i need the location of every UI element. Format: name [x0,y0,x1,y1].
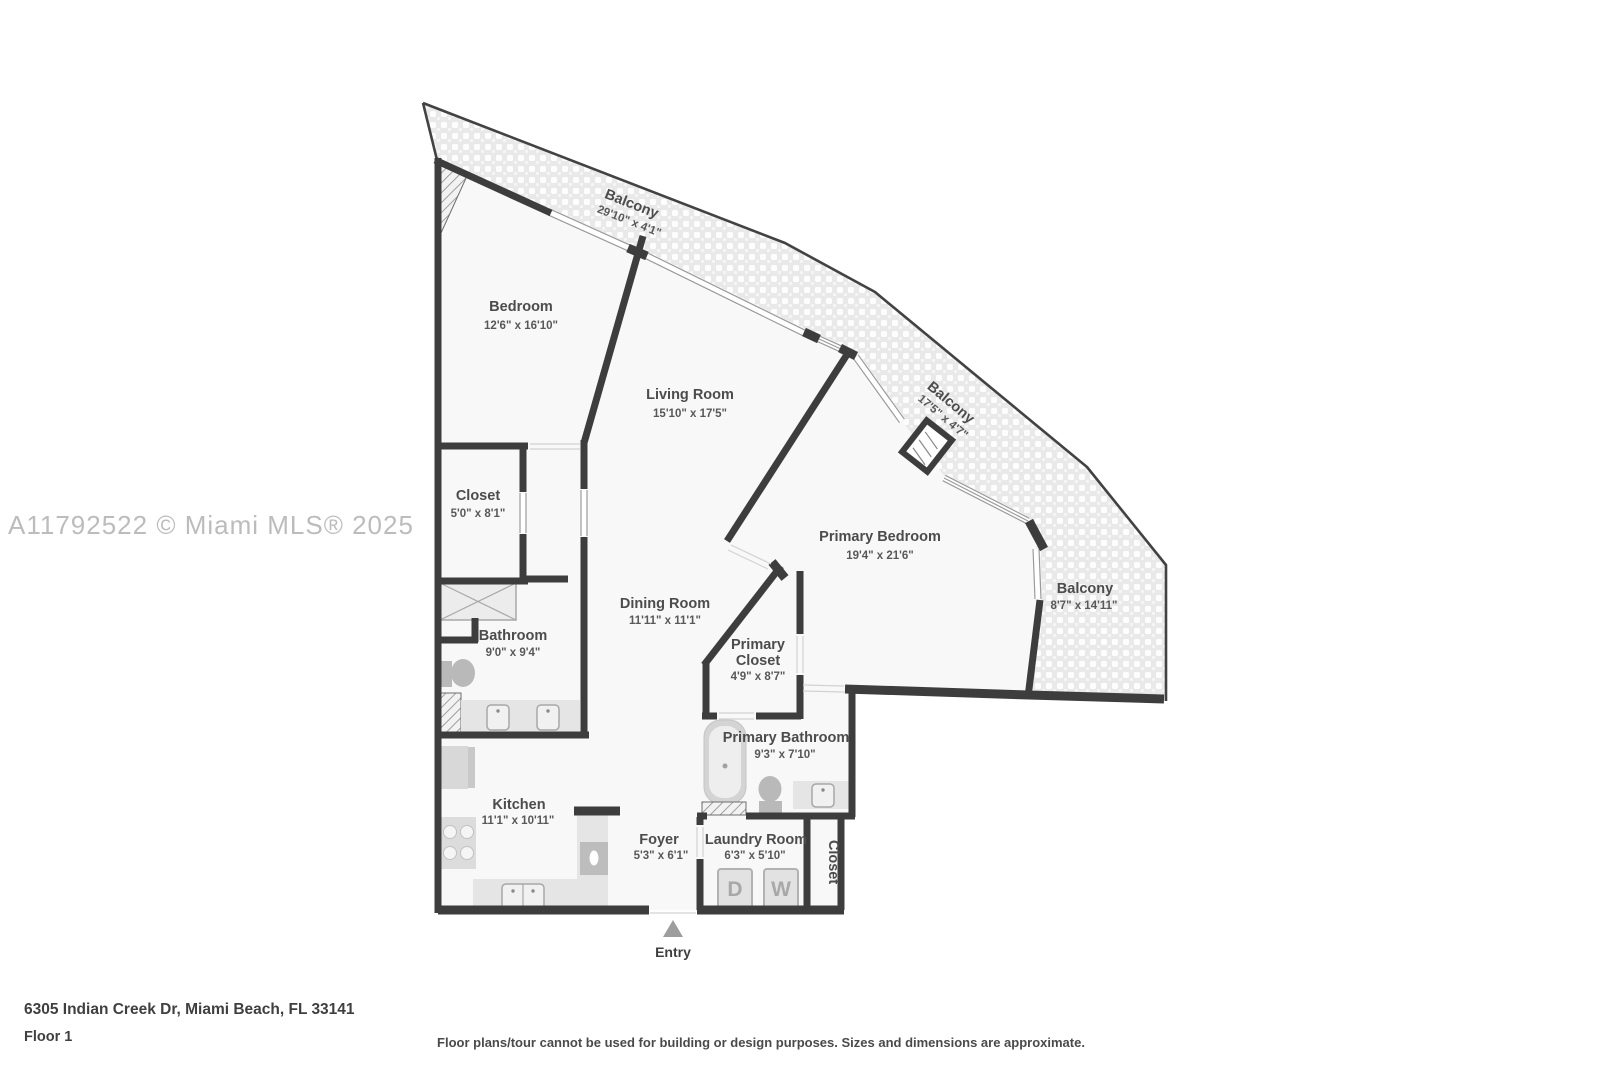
dryer-letter: D [727,878,742,901]
svg-text:8'7" x 14'11": 8'7" x 14'11" [1051,600,1118,612]
room-label-dining-room: Dining Room 11'11" x 11'1" [620,596,710,627]
svg-text:Closet: Closet [736,653,780,669]
svg-text:Dining Room: Dining Room [620,596,710,612]
wardrobe-icon [440,583,516,620]
svg-text:9'3" x 7'10": 9'3" x 7'10" [754,749,815,761]
svg-text:Primary: Primary [731,637,785,653]
svg-text:Closet: Closet [456,488,500,504]
svg-text:Living Room: Living Room [646,387,734,403]
svg-text:9'0" x 9'4": 9'0" x 9'4" [486,647,541,659]
svg-text:Laundry Room: Laundry Room [705,832,807,848]
toilet-icon [438,659,475,687]
footer-address: 6305 Indian Creek Dr, Miami Beach, FL 33… [24,1001,355,1019]
svg-text:11'11" x 11'1": 11'11" x 11'1" [629,615,701,627]
svg-text:Foyer: Foyer [639,832,679,848]
footer-disclaimer: Floor plans/tour cannot be used for buil… [437,1035,1085,1050]
room-label-primary-closet: Primary Closet 4'9" x 8'7" [731,637,786,683]
svg-text:15'10" x 17'5": 15'10" x 17'5" [653,408,727,420]
svg-text:Primary Bedroom: Primary Bedroom [819,529,941,545]
svg-text:Balcony: Balcony [1057,581,1113,597]
entry-label: Entry [655,944,691,960]
page: A11792522 © Miami MLS® 2025 [0,0,1600,1066]
svg-text:5'3" x 6'1": 5'3" x 6'1" [634,850,689,862]
floor-plan: D W [0,0,1600,1066]
primary-vanity [793,781,851,809]
tub-ledge-hatch [702,802,746,815]
footer-floor: Floor 1 [24,1029,72,1045]
svg-text:6'3" x 5'10": 6'3" x 5'10" [724,850,785,862]
room-label-closet-se: Closet [825,840,841,884]
room-label-bathroom: Bathroom 9'0" x 9'4" [479,628,547,659]
svg-text:Closet: Closet [825,840,841,884]
svg-text:11'1" x 10'11": 11'1" x 10'11" [482,815,555,827]
svg-text:4'9" x 8'7": 4'9" x 8'7" [731,671,786,683]
peninsula-sink-icon [580,842,608,875]
entry-marker: Entry [655,920,691,960]
svg-text:Bathroom: Bathroom [479,628,547,644]
washer-letter: W [771,878,791,901]
fridge-icon [438,746,475,789]
double-vanity [461,700,580,734]
svg-text:Primary Bathroom: Primary Bathroom [723,730,850,746]
entry-arrow-icon [663,920,683,937]
svg-text:Kitchen: Kitchen [492,797,545,813]
stove-icon [438,817,476,869]
primary-toilet-icon [759,776,783,814]
svg-text:19'4" x 21'6": 19'4" x 21'6" [846,550,914,562]
svg-text:Bedroom: Bedroom [489,299,553,315]
room-label-kitchen: Kitchen 11'1" x 10'11" [482,797,555,827]
room-label-balcony-right: Balcony 8'7" x 14'11" [1051,581,1118,612]
svg-text:5'0" x 8'1": 5'0" x 8'1" [451,508,506,520]
svg-text:12'6" x 16'10": 12'6" x 16'10" [484,320,558,332]
